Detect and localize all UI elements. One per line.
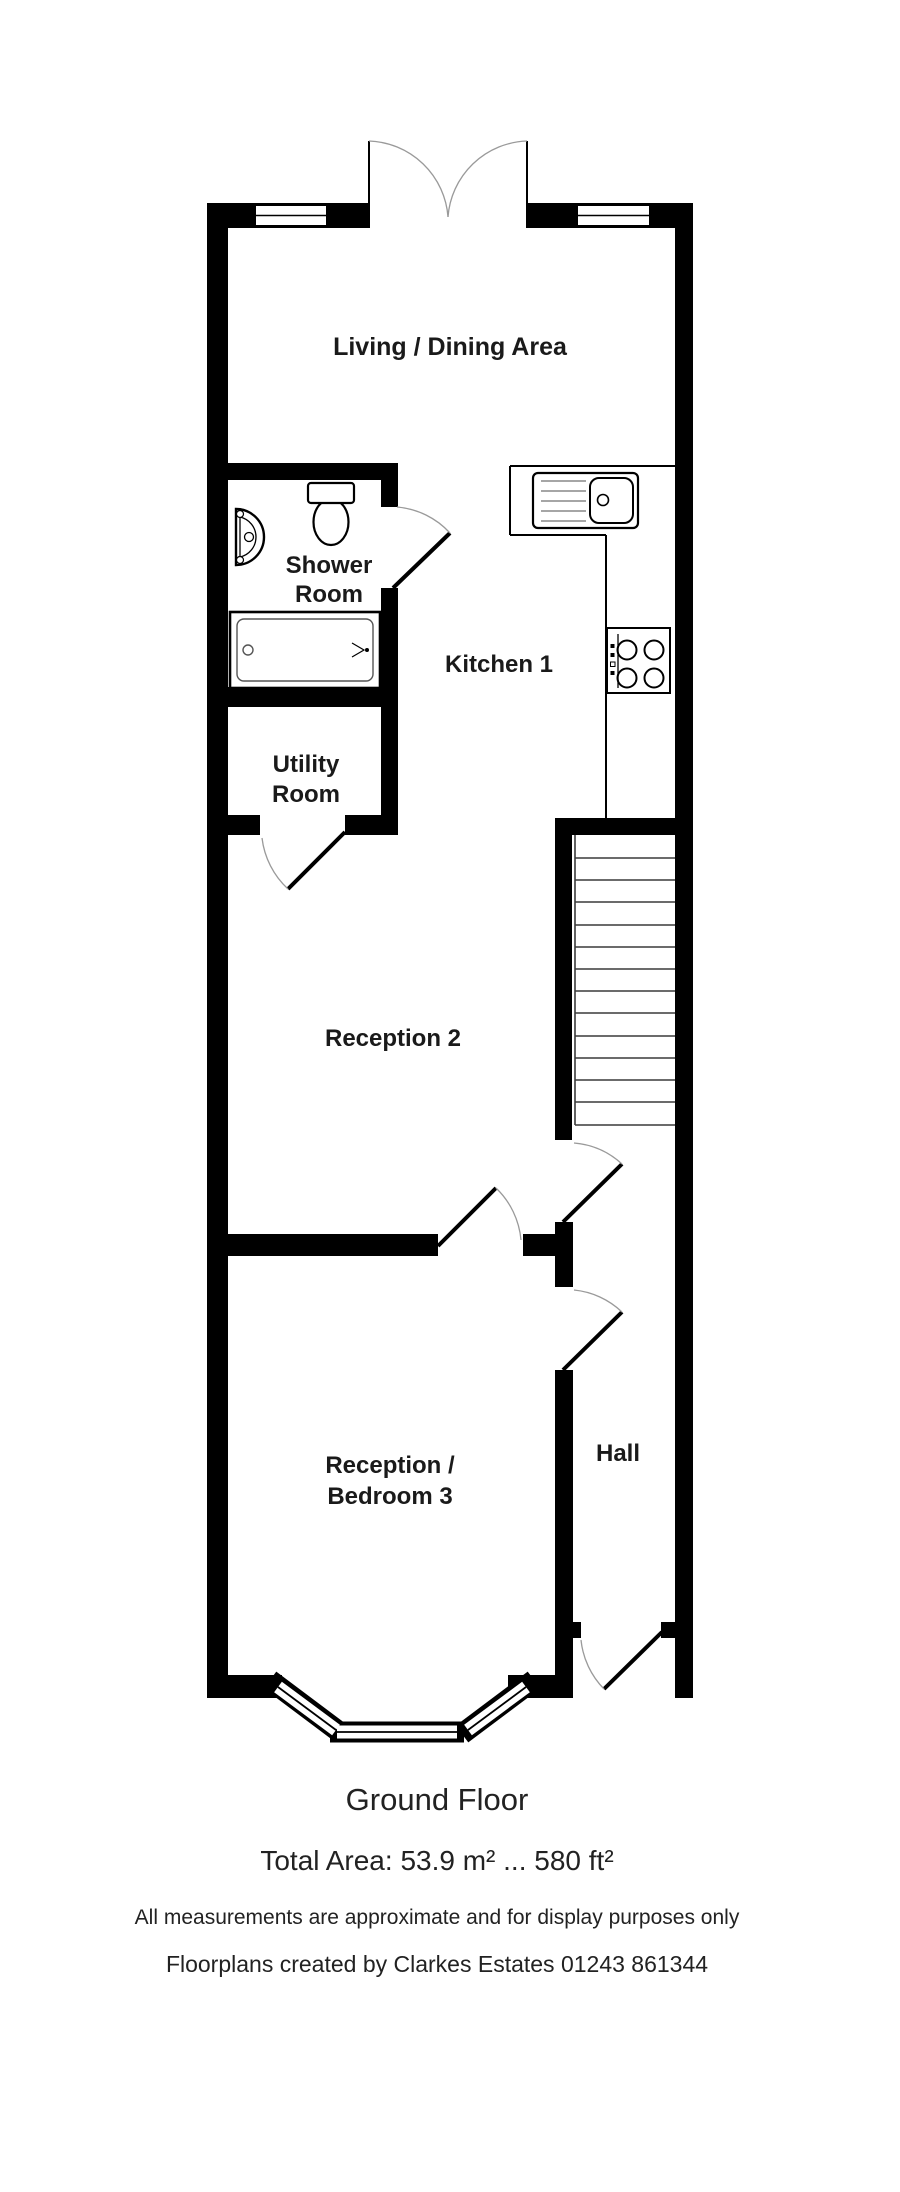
wall-utility-bottom-left bbox=[228, 815, 260, 835]
wall-hall-stub-upper bbox=[555, 1222, 573, 1287]
wall-right bbox=[675, 203, 693, 1698]
total-area: Total Area: 53.9 m² ... 580 ft² bbox=[260, 1845, 613, 1876]
top-right-window bbox=[577, 205, 650, 226]
bedroom3-hall-door bbox=[563, 1290, 622, 1370]
floorplan-page: Living / Dining Area Shower Room Kitchen… bbox=[0, 0, 900, 2192]
credit-line: Floorplans created by Clarkes Estates 01… bbox=[166, 1951, 708, 1977]
wall-left bbox=[207, 203, 228, 1698]
wall-stairs-top bbox=[555, 818, 675, 835]
label-shower-line1: Shower bbox=[286, 552, 373, 579]
basin-icon bbox=[236, 509, 264, 565]
label-shower-line2: Room bbox=[295, 581, 363, 608]
toilet-icon bbox=[308, 483, 354, 545]
label-reception2: Reception 2 bbox=[325, 1025, 461, 1052]
wall-shower-right-upper bbox=[381, 463, 398, 507]
floor-title: Ground Floor bbox=[346, 1782, 529, 1817]
front-door-jamb-left bbox=[573, 1622, 581, 1638]
reception-divider-door bbox=[438, 1188, 521, 1246]
bay-window bbox=[270, 1680, 534, 1734]
shower-room-door bbox=[393, 507, 450, 588]
wall-hall-lower bbox=[555, 1370, 573, 1698]
label-utility-line1: Utility bbox=[273, 751, 340, 778]
label-kitchen: Kitchen 1 bbox=[445, 651, 553, 678]
label-living-dining: Living / Dining Area bbox=[333, 333, 568, 361]
front-door-jamb-right bbox=[661, 1622, 675, 1638]
wall-shower-bottom bbox=[228, 687, 398, 707]
staircase bbox=[575, 835, 675, 1125]
wall-utility-bottom-right bbox=[345, 815, 398, 835]
label-reception3-line2: Bedroom 3 bbox=[327, 1483, 452, 1510]
label-hall: Hall bbox=[596, 1440, 640, 1467]
label-utility-line2: Room bbox=[272, 781, 340, 808]
wall-divider-right bbox=[523, 1234, 555, 1256]
kitchen-sink-icon bbox=[533, 473, 638, 528]
hob-icon bbox=[607, 628, 670, 693]
wall-stairs-left bbox=[555, 818, 572, 1140]
wall-divider-left bbox=[207, 1234, 438, 1256]
top-left-window bbox=[255, 205, 327, 226]
utility-room-door bbox=[262, 832, 345, 889]
wall-shower-top bbox=[228, 463, 398, 480]
floor-plan: Living / Dining Area Shower Room Kitchen… bbox=[0, 0, 900, 2192]
bath-icon bbox=[230, 612, 380, 688]
label-reception3-line1: Reception / bbox=[325, 1452, 455, 1479]
stairs-hall-door bbox=[563, 1143, 622, 1222]
disclaimer: All measurements are approximate and for… bbox=[135, 1906, 740, 1929]
front-door bbox=[581, 1632, 662, 1689]
footer: Ground Floor Total Area: 53.9 m² ... 580… bbox=[135, 1782, 740, 1977]
